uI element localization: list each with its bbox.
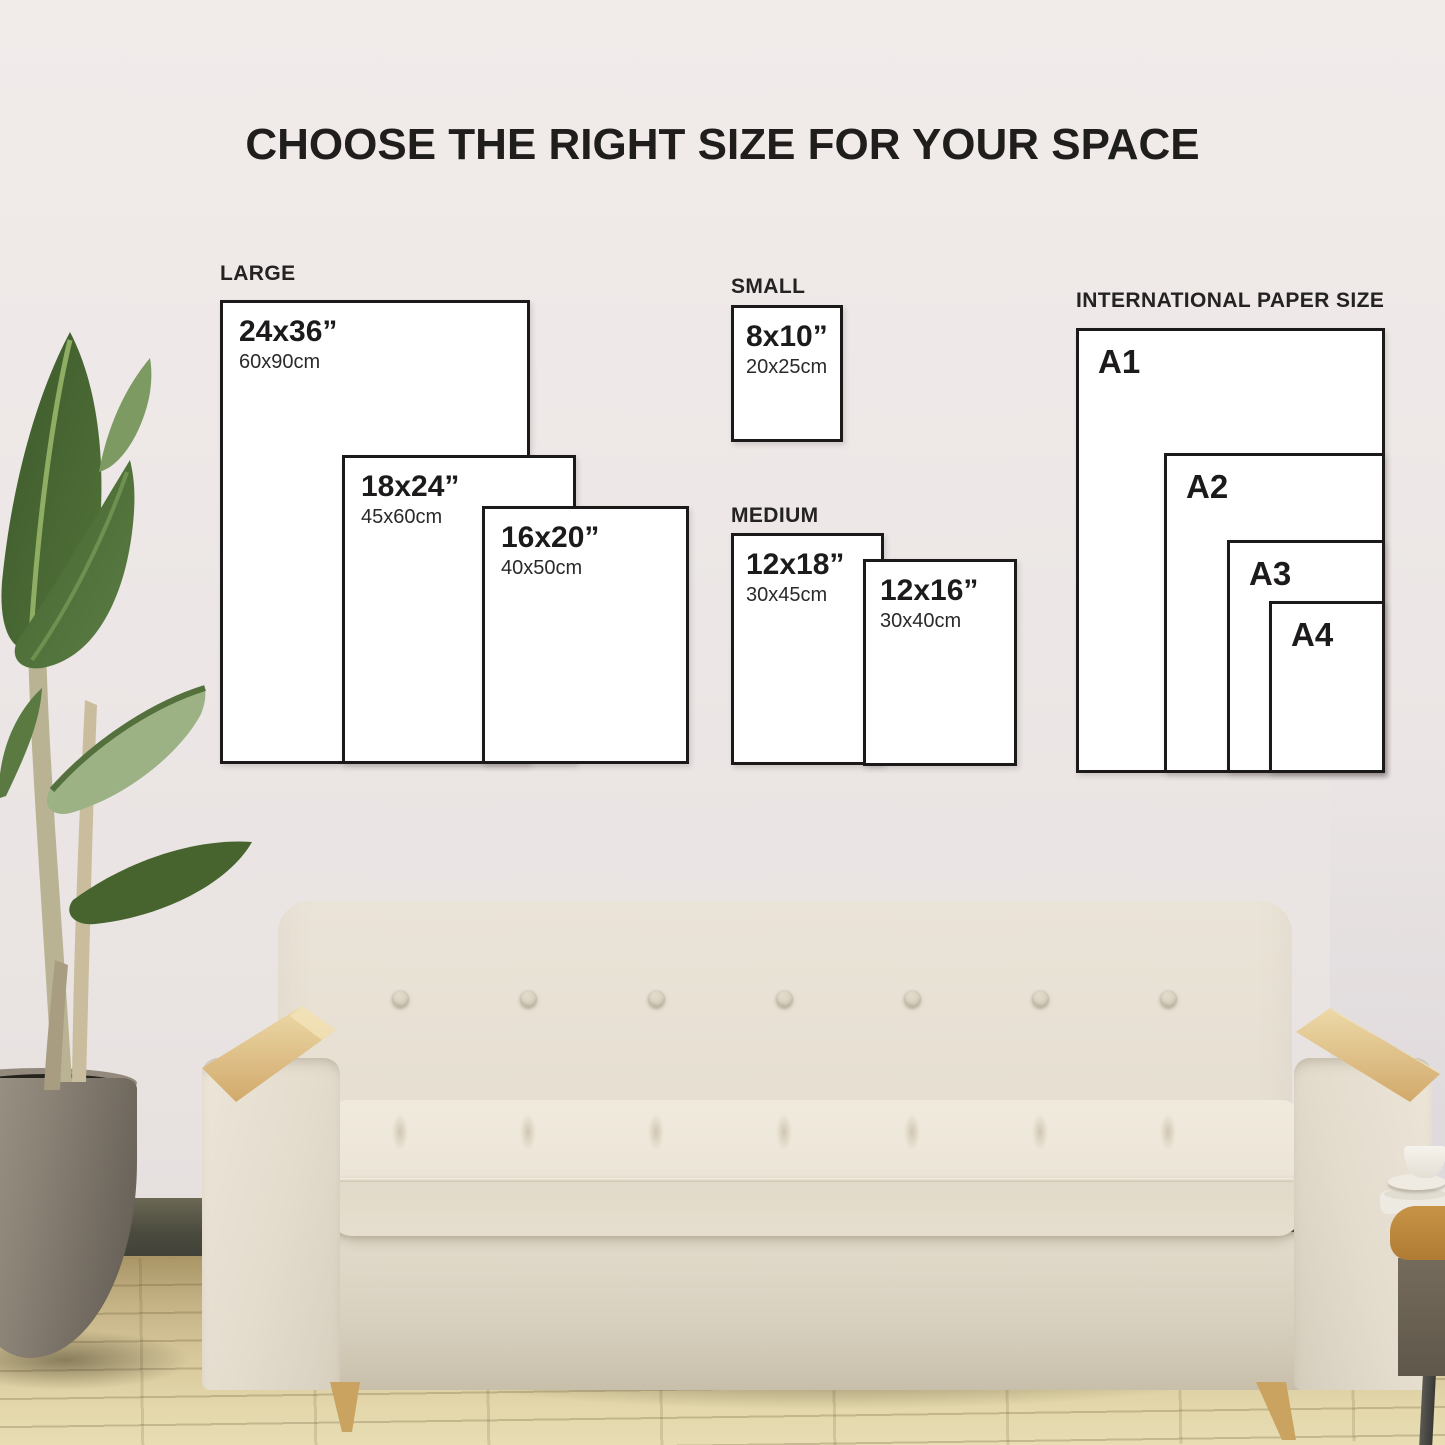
sofa-leg-left bbox=[330, 1382, 360, 1432]
size-label-inch: 18x24” bbox=[345, 458, 573, 505]
size-label-a2: A2 bbox=[1167, 456, 1382, 506]
size-label-cm: 30x40cm bbox=[866, 609, 1014, 633]
size-label-cm: 40x50cm bbox=[485, 556, 686, 580]
size-label-inch: 12x16” bbox=[866, 562, 1014, 609]
size-label-cm: 20x25cm bbox=[734, 355, 840, 379]
group-label-international: INTERNATIONAL PAPER SIZE bbox=[1076, 290, 1384, 311]
size-box-12x18: 12x18” 30x45cm bbox=[731, 533, 884, 765]
size-box-16x20: 16x20” 40x50cm bbox=[482, 506, 689, 764]
group-label-small: SMALL bbox=[731, 276, 805, 297]
size-box-a4: A4 bbox=[1269, 601, 1385, 773]
size-label-cm: 60x90cm bbox=[223, 350, 527, 374]
group-label-medium: MEDIUM bbox=[731, 505, 819, 526]
side-table-top bbox=[1390, 1206, 1445, 1260]
size-guide-mockup: CHOOSE THE RIGHT SIZE FOR YOUR SPACE LAR… bbox=[0, 0, 1445, 1445]
sofa-leg-right bbox=[1256, 1382, 1296, 1440]
size-label-inch: 24x36” bbox=[223, 303, 527, 350]
size-box-12x16: 12x16” 30x40cm bbox=[863, 559, 1017, 766]
size-label-cm: 30x45cm bbox=[734, 583, 881, 607]
chart-title: CHOOSE THE RIGHT SIZE FOR YOUR SPACE bbox=[0, 120, 1445, 170]
armrest-wood-right bbox=[1296, 1008, 1440, 1102]
size-label-a4: A4 bbox=[1272, 604, 1382, 654]
side-table-base bbox=[1398, 1258, 1445, 1376]
group-label-large: LARGE bbox=[220, 263, 296, 284]
size-label-a3: A3 bbox=[1230, 543, 1382, 593]
size-label-a1: A1 bbox=[1079, 331, 1382, 381]
size-box-8x10: 8x10” 20x25cm bbox=[731, 305, 843, 442]
size-label-inch: 8x10” bbox=[734, 308, 840, 355]
size-label-inch: 12x18” bbox=[734, 536, 881, 583]
size-label-inch: 16x20” bbox=[485, 509, 686, 556]
